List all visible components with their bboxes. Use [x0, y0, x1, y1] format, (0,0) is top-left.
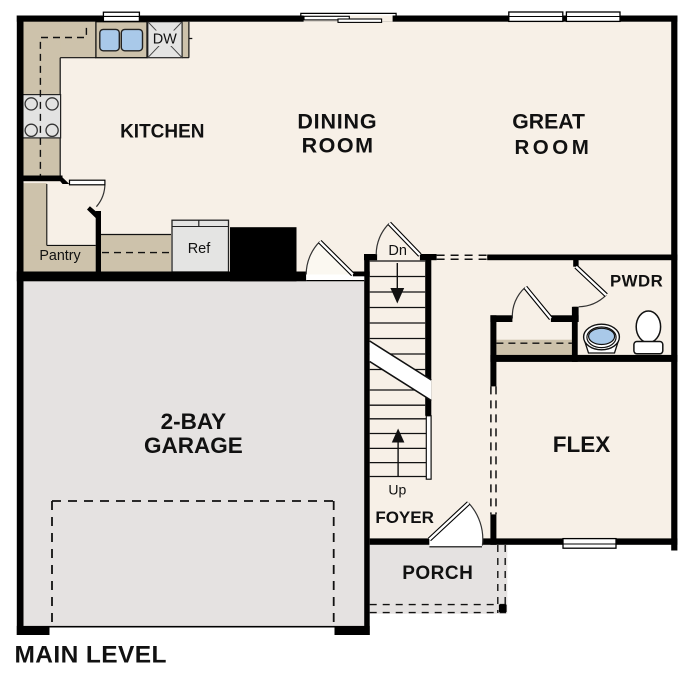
- svg-text:KITCHEN: KITCHEN: [120, 121, 204, 142]
- svg-text:PORCH: PORCH: [402, 563, 473, 584]
- svg-text:DINING: DINING: [297, 110, 377, 134]
- svg-text:GREAT: GREAT: [512, 111, 585, 134]
- svg-text:FLEX: FLEX: [553, 432, 611, 457]
- svg-text:Up: Up: [388, 482, 406, 498]
- svg-text:FOYER: FOYER: [375, 508, 434, 527]
- svg-text:MAIN LEVEL: MAIN LEVEL: [15, 642, 167, 669]
- svg-text:DW: DW: [153, 31, 177, 47]
- svg-text:2-BAY: 2-BAY: [161, 409, 226, 434]
- svg-text:Ref: Ref: [188, 241, 212, 257]
- svg-text:Dn: Dn: [388, 243, 407, 259]
- svg-text:ROOM: ROOM: [302, 134, 375, 158]
- svg-text:ROOM: ROOM: [515, 136, 593, 159]
- svg-text:Pantry: Pantry: [39, 248, 81, 264]
- svg-text:GARAGE: GARAGE: [144, 433, 243, 458]
- svg-text:PWDR: PWDR: [610, 271, 663, 290]
